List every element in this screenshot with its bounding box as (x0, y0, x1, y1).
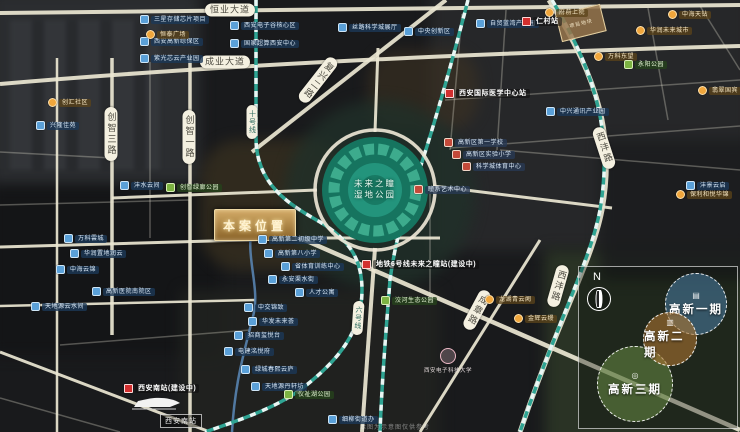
green-marker-icon (381, 296, 390, 305)
blue-marker-icon (338, 23, 347, 32)
poi-marker: 中兴通讯产业园 (546, 107, 609, 116)
green-marker-icon (166, 183, 175, 192)
orange-marker-icon (485, 295, 494, 304)
blue-marker-icon (546, 107, 555, 116)
orange-marker-icon (146, 30, 155, 39)
poi-marker: 细柳街道办 (328, 415, 378, 424)
orange-marker-icon (594, 52, 603, 61)
phase-circle: ▥高新二期 (643, 312, 697, 366)
park-label: 未来之瞳 湿地公园 (354, 179, 396, 202)
poi-marker: 兴隆佳苑 (36, 121, 79, 130)
poi-marker-label: 华润置地润云 (81, 250, 126, 258)
poi-marker-label: 永阳公园 (635, 61, 667, 69)
poi-marker: 龙湖青云阙 (485, 295, 535, 304)
orange-marker-icon (636, 26, 645, 35)
poi-marker-label: 高新第二初级中学 (269, 236, 327, 244)
poi-marker-label: 永安渠水街 (279, 276, 318, 284)
poi-marker-label: 华发未来荟 (259, 318, 298, 326)
poi-marker: 高新第八小学 (264, 249, 320, 258)
road-label: 十号线 (247, 105, 258, 139)
phase-icon: ▥ (666, 319, 674, 327)
orange-marker-icon (668, 10, 677, 19)
poi-marker-label: 洨河生态公园 (392, 297, 437, 305)
poi-marker: 瞳系艺术中心 (414, 185, 470, 194)
metro-station-marker: 西安南站(建设中) (124, 384, 199, 393)
blue-marker-icon (234, 331, 243, 340)
metro-station-marker: 西安国际医学中心站 (445, 89, 530, 98)
orange-marker-icon (48, 98, 57, 107)
blue-marker-icon (268, 275, 277, 284)
university-name: 西安电子科技大学 (418, 366, 478, 374)
compass-needle (596, 290, 603, 308)
poi-marker-label: 高新区第一学校 (455, 139, 507, 147)
poi-marker: 西安电子谷核心区 (230, 21, 299, 30)
poi-marker: 电建洺悦府 (224, 347, 274, 356)
blue-marker-icon (295, 288, 304, 297)
poi-marker-label: 绿城春熙云庐 (252, 366, 297, 374)
poi-marker: 招商玺悦台 (234, 331, 284, 340)
blue-marker-icon (476, 19, 485, 28)
project-parcel-label: 项目地块 (568, 17, 593, 30)
school-marker-icon (452, 150, 461, 159)
blue-marker-icon (241, 365, 250, 374)
orange-marker-icon (545, 8, 554, 17)
poi-marker: 省体育训练中心 (281, 262, 344, 271)
river-canal (232, 226, 255, 432)
poi-marker: 沣水云间 (120, 181, 163, 190)
poi-marker: 华润置地润云 (70, 249, 126, 258)
poi-marker-label: 万科雲城 (75, 235, 107, 243)
blue-marker-icon (64, 234, 73, 243)
poi-marker-label: 西安南站(建设中) (135, 384, 199, 393)
orange-marker-icon (676, 190, 685, 199)
poi-marker: 天地源云水间 (31, 302, 87, 311)
orange-marker-icon (514, 314, 523, 323)
poi-marker-label: 龙湖青云阙 (496, 296, 535, 304)
poi-marker: 恒泰广场 (146, 30, 189, 39)
phase-label: 高新二期 (644, 328, 696, 360)
green-marker-icon (284, 390, 293, 399)
blue-marker-icon (686, 181, 695, 190)
poi-marker-label: 人才公寓 (306, 289, 338, 297)
school-marker-icon (462, 162, 471, 171)
red-marker-icon (362, 260, 371, 269)
poi-marker-label: 翡翠国宾 (709, 87, 740, 95)
poi-marker: 中央创新区 (404, 27, 454, 36)
poi-marker: 高新第二初级中学 (258, 235, 327, 244)
poi-marker-label: 恒泰广场 (157, 31, 189, 39)
poi-marker-label: 招商玺悦台 (245, 332, 284, 340)
poi-marker-label: 仪祉湖公园 (295, 391, 334, 399)
road-label: 成业大道 (200, 56, 250, 69)
poi-marker-label: 中海天钻 (679, 11, 711, 19)
blue-marker-icon (70, 249, 79, 258)
poi-marker-label: 中交锦致 (255, 304, 287, 312)
poi-marker-label: 紫光芯云产业园 (151, 55, 203, 63)
poi-marker: 国家超算西安中心 (230, 39, 299, 48)
blue-marker-icon (328, 415, 337, 424)
blue-marker-icon (258, 235, 267, 244)
poi-marker: 万科雲城 (64, 234, 107, 243)
blue-marker-icon (251, 382, 260, 391)
blue-marker-icon (264, 249, 273, 258)
blue-marker-icon (31, 302, 40, 311)
blue-marker-icon (36, 121, 45, 130)
blue-marker-icon (248, 317, 257, 326)
road-label: 恒业大道 (205, 4, 255, 17)
poi-marker: 紫光芯云产业园 (140, 54, 203, 63)
poi-marker: 高新医院南院区 (92, 287, 155, 296)
red-marker-icon (445, 89, 454, 98)
blue-marker-icon (140, 54, 149, 63)
blue-marker-icon (404, 27, 413, 36)
poi-marker-label: 兴隆佳苑 (47, 122, 79, 130)
poi-marker: 金辉云缦 (514, 314, 557, 323)
blue-marker-icon (56, 265, 65, 274)
poi-marker: 三星存储芯片项目 (140, 15, 209, 24)
poi-marker-label: 丝路科学城展厅 (349, 24, 401, 32)
orange-marker-icon (698, 86, 707, 95)
poi-marker-label: 保利和悦华锦 (687, 191, 732, 199)
poi-marker-label: 瞳系艺术中心 (425, 186, 470, 194)
poi-marker: 丝路科学城展厅 (338, 23, 401, 32)
road-label: 六号线 (351, 301, 364, 336)
poi-marker: 华润未来城市 (636, 26, 692, 35)
poi-marker: 高新区实验小学 (452, 150, 515, 159)
university-logo-icon (440, 348, 456, 364)
poi-marker: 府前上院 (545, 8, 588, 17)
blue-marker-icon (92, 287, 101, 296)
blue-marker-icon (230, 39, 239, 48)
poi-marker: 创智绿廊公园 (166, 183, 222, 192)
poi-marker-label: 细柳街道办 (339, 416, 378, 424)
blue-marker-icon (120, 181, 129, 190)
poi-marker-label: 三星存储芯片项目 (151, 16, 209, 24)
red-marker-icon (124, 384, 133, 393)
project-site-banner-label: 本案位置 (223, 217, 287, 234)
poi-marker: 绿城春熙云庐 (241, 365, 297, 374)
poi-marker: 仪祉湖公园 (284, 390, 334, 399)
blue-marker-icon (224, 347, 233, 356)
poi-marker-label: 地铁6号线未来之瞳站(建设中) (373, 260, 479, 269)
real-estate-location-map: 未来之瞳 湿地公园 项目地块 本案位置 西安南站 西安电子科技大学 本图为示意图… (0, 0, 740, 432)
poi-marker: 洨河生态公园 (381, 296, 437, 305)
park-name-line1: 未来之瞳 (354, 179, 396, 190)
poi-marker-label: 西安电子谷核心区 (241, 22, 299, 30)
legend-box: N ▤高新一期◎高新三期▥高新二期 (578, 266, 738, 429)
green-marker-icon (624, 60, 633, 69)
station-name-box: 西安南站 (160, 414, 202, 428)
metro-station-marker: 仁村站 (522, 17, 562, 26)
poi-marker-label: 中兴通讯产业园 (557, 108, 609, 116)
poi-marker: 永阳公园 (624, 60, 667, 69)
poi-marker-label: 金辉云缦 (525, 315, 557, 323)
poi-marker: 翡翠国宾 (698, 86, 740, 95)
poi-marker-label: 创智绿廊公园 (177, 184, 222, 192)
poi-marker-label: 创汇社区 (59, 99, 91, 107)
red-marker-icon (522, 17, 531, 26)
poi-marker-label: 沣水云间 (131, 182, 163, 190)
phase-icon: ▤ (692, 292, 700, 300)
phase-icon: ◎ (632, 372, 639, 380)
north-label: N (593, 271, 601, 283)
phase-label: 高新三期 (608, 381, 662, 397)
poi-marker-label: 高新区实验小学 (463, 151, 515, 159)
metro-station-marker: 地铁6号线未来之瞳站(建设中) (362, 260, 479, 269)
poi-marker-label: 中海云锦 (67, 266, 99, 274)
poi-marker: 人才公寓 (295, 288, 338, 297)
blue-marker-icon (281, 262, 290, 271)
poi-marker: 沣景云启 (686, 181, 729, 190)
poi-marker-label: 天地源云水间 (42, 303, 87, 311)
blue-marker-icon (244, 303, 253, 312)
school-marker-icon (414, 185, 423, 194)
poi-marker-label: 高新医院南院区 (103, 288, 155, 296)
poi-marker: 中海云锦 (56, 265, 99, 274)
poi-marker: 科学城体育中心 (462, 162, 525, 171)
poi-marker: 中海天钻 (668, 10, 711, 19)
poi-marker-label: 府前上院 (556, 9, 588, 17)
poi-marker: 保利和悦华锦 (676, 190, 732, 199)
university-marker: 西安电子科技大学 (418, 348, 478, 374)
poi-marker-label: 省体育训练中心 (292, 263, 344, 271)
poi-marker-label: 国家超算西安中心 (241, 40, 299, 48)
blue-marker-icon (230, 21, 239, 30)
poi-marker-label: 电建洺悦府 (235, 348, 274, 356)
high-speed-train-icon (132, 398, 180, 409)
poi-marker-label: 沣景云启 (697, 182, 729, 190)
blue-marker-icon (140, 15, 149, 24)
park-name-line2: 湿地公园 (354, 190, 396, 201)
road-label: 创智一路 (183, 110, 196, 164)
school-marker-icon (444, 138, 453, 147)
poi-marker-label: 华润未来城市 (647, 27, 692, 35)
poi-marker: 创汇社区 (48, 98, 91, 107)
road-label: 创智三路 (105, 107, 118, 161)
compass-icon (587, 287, 611, 311)
poi-marker: 永安渠水街 (268, 275, 318, 284)
poi-marker: 华发未来荟 (248, 317, 298, 326)
poi-marker: 高新区第一学校 (444, 138, 507, 147)
poi-marker-label: 西安国际医学中心站 (456, 89, 530, 98)
poi-marker-label: 仁村站 (533, 17, 562, 26)
poi-marker-label: 中央创新区 (415, 28, 454, 36)
poi-marker: 中交锦致 (244, 303, 287, 312)
poi-marker-label: 科学城体育中心 (473, 163, 525, 171)
poi-marker-label: 高新第八小学 (275, 250, 320, 258)
